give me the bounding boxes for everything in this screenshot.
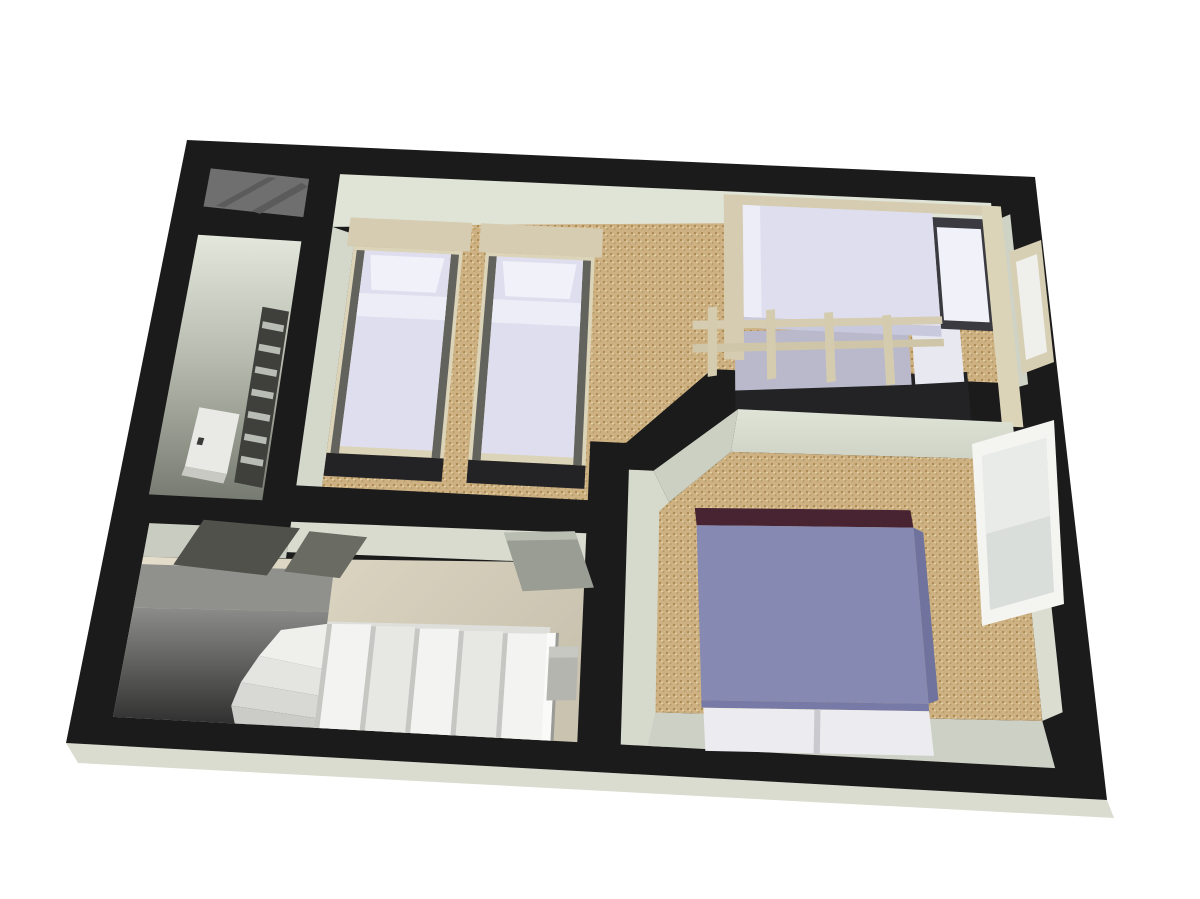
bedroom-door-edge — [504, 531, 577, 540]
double-bed-pillow-divider — [814, 709, 821, 754]
bunk-bed-duvet-highlight — [743, 205, 762, 318]
single-bed-1-duvet-fold — [356, 293, 447, 320]
double-bed-duvet — [697, 525, 929, 704]
bunk-bed-rail-post-1 — [708, 307, 717, 377]
bunk-bed-rail-post-2 — [766, 309, 776, 380]
double-bed-headboard — [695, 508, 914, 528]
bunk-bed-pillow — [937, 227, 990, 322]
single-bed-1-headboard — [347, 217, 473, 251]
single-bed-2-headboard — [479, 223, 603, 257]
bunk-bed-foot-board — [724, 194, 744, 360]
single-bed-1-pillow — [370, 255, 444, 293]
stair-newel-top — [549, 646, 579, 657]
single-bed-2-pillow — [503, 261, 577, 299]
floorplan-svg — [0, 0, 1200, 899]
single-bed-2-duvet-fold — [492, 299, 581, 326]
floorplan-3d-view — [0, 0, 1200, 899]
bunk-bed-duvet — [743, 205, 941, 326]
